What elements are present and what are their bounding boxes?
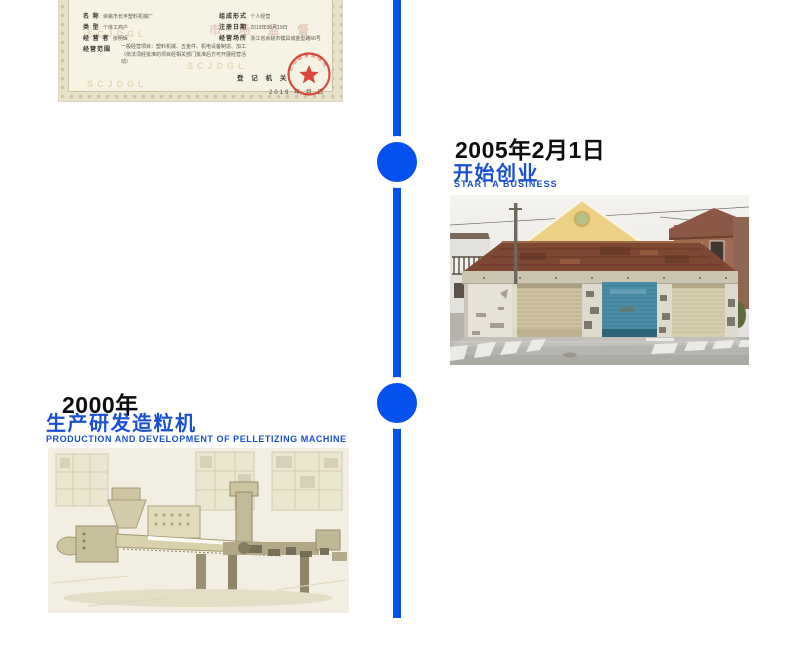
- license-field-label: 经 营 者: [83, 36, 109, 42]
- event-2000-title-cn: 生产研发造粒机: [46, 407, 197, 436]
- event-2000-title-en: PRODUCTION AND DEVELOPMENT OF PELLETIZIN…: [46, 434, 347, 444]
- timeline-node-2005: [371, 136, 423, 188]
- license-field-label: 名 称: [83, 14, 100, 20]
- right-rollup-door: [672, 284, 725, 337]
- business-license-paper: 市 场 监 督 SCJDGL SCJDGL SCJDGL 名 称 余姚市长丰塑料…: [68, 0, 333, 92]
- license-field-value: 个体工商户: [103, 25, 128, 31]
- timeline-node-2000: [371, 377, 423, 429]
- pelletizing-machine-photo: [48, 448, 349, 613]
- license-field-label: 注册日期: [219, 25, 247, 31]
- license-field-value: 张明辉: [113, 36, 128, 42]
- license-field-value: 浙江省余姚市模具城金型路66号: [250, 36, 321, 42]
- utility-pole: [514, 203, 517, 284]
- license-field-label: 经营场所: [219, 36, 247, 42]
- workshop-windows: [56, 452, 342, 510]
- license-registry-label: 登 记 机 关: [237, 72, 289, 82]
- road: [450, 337, 749, 365]
- license-field-value: 余姚市长丰塑料机械厂: [103, 14, 153, 20]
- license-scope-value: 一般经营项目：塑料机械、五金件、机电设备制造、加工（依法须经批准的项目经相关部门…: [121, 44, 246, 67]
- license-field-label: 类 型: [83, 25, 100, 31]
- left-rollup-door: [517, 284, 582, 337]
- license-field-label: 组成形式: [219, 14, 247, 20]
- red-official-seal: 市场监督管理局: [286, 51, 332, 97]
- event-2005-title-en: START A BUSINESS: [454, 179, 558, 189]
- old-garage-building-photo: [450, 195, 749, 365]
- business-license-photo: 市 场 监 督 SCJDGL SCJDGL SCJDGL 名 称 余姚市长丰塑料…: [58, 0, 343, 102]
- blue-rollup-door: [602, 282, 657, 337]
- license-field-value: 个人经营: [250, 14, 270, 20]
- license-watermark: SCJDGL: [87, 79, 148, 89]
- license-field-label: 经营范围: [83, 47, 111, 53]
- license-field-value: 2019年06月19日: [250, 25, 287, 31]
- timeline-line: [393, 0, 401, 618]
- company-history-timeline-page: 市 场 监 督 SCJDGL SCJDGL SCJDGL 名 称 余姚市长丰塑料…: [0, 0, 800, 649]
